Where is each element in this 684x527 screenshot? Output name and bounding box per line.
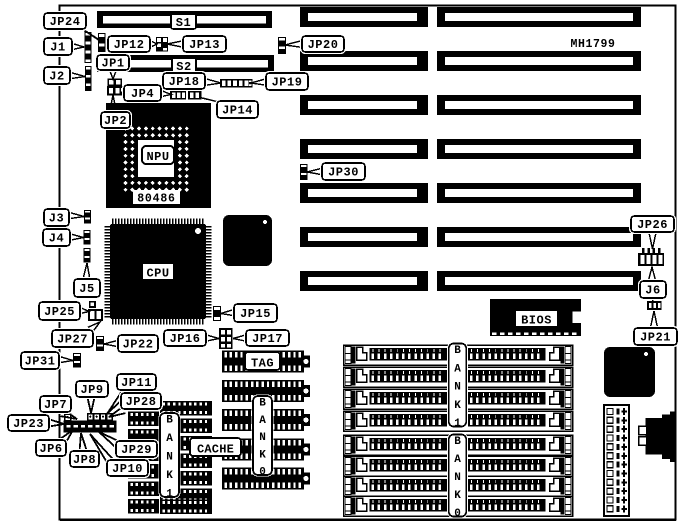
svg-text:JP23: JP23 <box>13 417 44 431</box>
svg-text:A: A <box>166 433 173 445</box>
svg-text:JP7: JP7 <box>44 398 67 412</box>
svg-text:JP17: JP17 <box>252 332 283 346</box>
svg-text:S1: S1 <box>176 16 191 30</box>
svg-text:NPU: NPU <box>146 150 169 164</box>
svg-text:JP29: JP29 <box>121 443 152 457</box>
svg-text:A: A <box>454 363 461 375</box>
svg-text:J3: J3 <box>49 212 64 226</box>
svg-text:B: B <box>454 345 461 357</box>
svg-text:BIOS: BIOS <box>521 314 552 328</box>
svg-text:JP21: JP21 <box>640 331 671 345</box>
svg-text:B: B <box>259 398 266 410</box>
svg-text:MH1799: MH1799 <box>570 38 615 51</box>
svg-text:JP9: JP9 <box>80 383 103 397</box>
svg-text:JP6: JP6 <box>39 442 62 456</box>
svg-text:J4: J4 <box>49 232 64 246</box>
svg-text:J1: J1 <box>50 41 65 55</box>
svg-text:B: B <box>454 436 461 448</box>
svg-text:JP4: JP4 <box>131 87 154 101</box>
svg-text:JP18: JP18 <box>169 75 200 89</box>
svg-text:N: N <box>454 472 461 484</box>
svg-text:K: K <box>259 449 266 461</box>
svg-text:JP10: JP10 <box>112 462 143 476</box>
svg-text:JP31: JP31 <box>25 355 56 369</box>
svg-text:CACHE: CACHE <box>197 443 234 457</box>
svg-text:A: A <box>259 415 266 427</box>
svg-text:N: N <box>259 432 266 444</box>
svg-text:JP25: JP25 <box>44 305 75 319</box>
svg-text:1: 1 <box>166 489 173 501</box>
svg-text:JP11: JP11 <box>121 376 152 390</box>
svg-text:JP1: JP1 <box>101 57 124 71</box>
svg-text:0: 0 <box>259 467 266 479</box>
svg-text:JP30: JP30 <box>328 166 359 180</box>
svg-text:CPU: CPU <box>146 267 169 281</box>
svg-text:N: N <box>166 452 173 464</box>
svg-text:JP20: JP20 <box>308 38 339 52</box>
svg-text:J2: J2 <box>49 70 64 84</box>
svg-text:JP16: JP16 <box>170 332 201 346</box>
svg-text:JP13: JP13 <box>189 38 220 52</box>
svg-text:JP15: JP15 <box>240 307 271 321</box>
svg-text:JP2: JP2 <box>104 114 127 128</box>
svg-text:K: K <box>454 400 461 412</box>
svg-text:JP28: JP28 <box>126 395 157 409</box>
svg-text:JP24: JP24 <box>50 15 81 29</box>
svg-text:J6: J6 <box>645 284 660 298</box>
svg-text:JP12: JP12 <box>114 38 145 52</box>
svg-text:JP22: JP22 <box>123 338 154 352</box>
svg-text:JP19: JP19 <box>272 76 303 90</box>
svg-text:A: A <box>454 454 461 466</box>
svg-text:K: K <box>166 470 173 482</box>
svg-text:JP27: JP27 <box>57 333 88 347</box>
svg-text:JP14: JP14 <box>222 104 253 118</box>
svg-text:B: B <box>166 415 173 427</box>
svg-text:N: N <box>454 382 461 394</box>
svg-text:JP8: JP8 <box>73 453 96 467</box>
svg-text:JP26: JP26 <box>637 218 668 232</box>
svg-text:K: K <box>454 490 461 502</box>
svg-text:0: 0 <box>454 508 461 520</box>
svg-text:TAG: TAG <box>251 357 274 371</box>
svg-text:80486: 80486 <box>137 193 176 206</box>
svg-text:J5: J5 <box>79 282 94 296</box>
svg-text:1: 1 <box>454 418 461 430</box>
